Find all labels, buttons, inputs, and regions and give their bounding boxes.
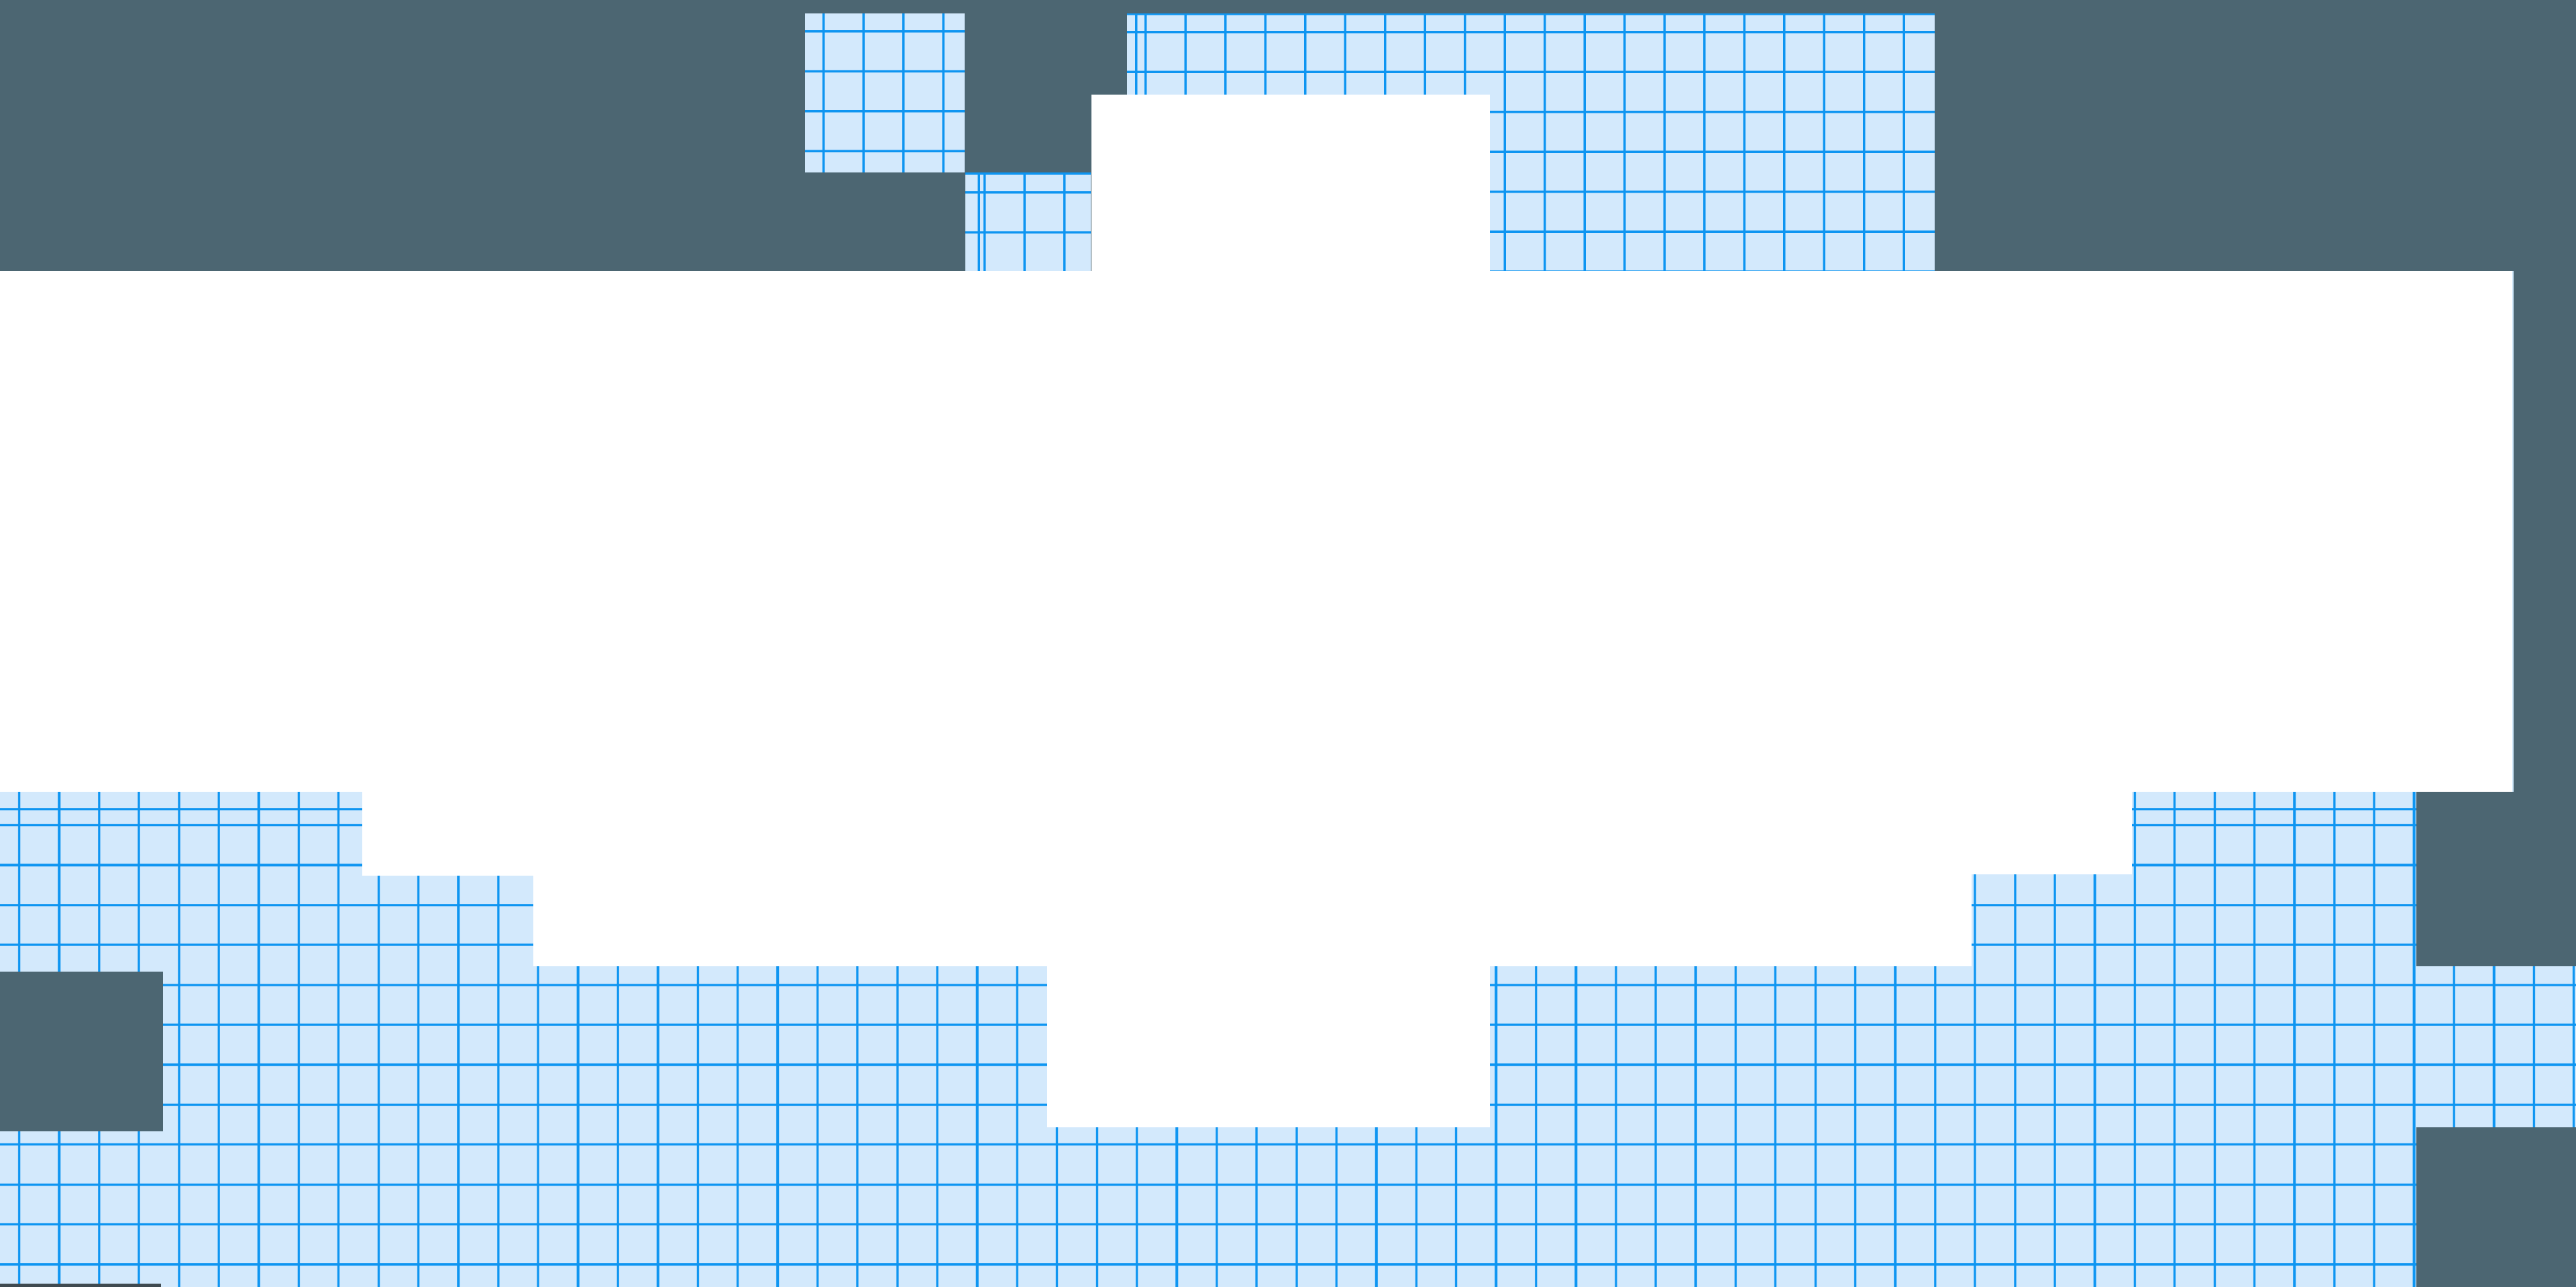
white-area-step-left-1: [362, 792, 533, 876]
loading-tile-small-top: [805, 13, 965, 172]
loading-tile-small-mid: [965, 172, 1091, 271]
dark-notch-right-lower: [2416, 1127, 2576, 1287]
white-area-step-right-2: [1972, 792, 2132, 874]
dark-notch-bottom-left: [0, 972, 163, 1131]
app-canvas[interactable]: [0, 0, 2576, 1287]
dark-sliver-bottom-edge: [0, 1284, 161, 1287]
white-area-top-notch: [1091, 95, 1490, 271]
white-area-step-left-2: [533, 792, 1047, 966]
white-area-step-right-1: [1490, 792, 1972, 966]
white-area-center-band: [0, 271, 2514, 792]
dark-notch-right-upper: [2416, 792, 2576, 966]
white-area-bottom-column: [1047, 792, 1490, 1127]
tile-seam-right-edge: [2512, 271, 2514, 792]
